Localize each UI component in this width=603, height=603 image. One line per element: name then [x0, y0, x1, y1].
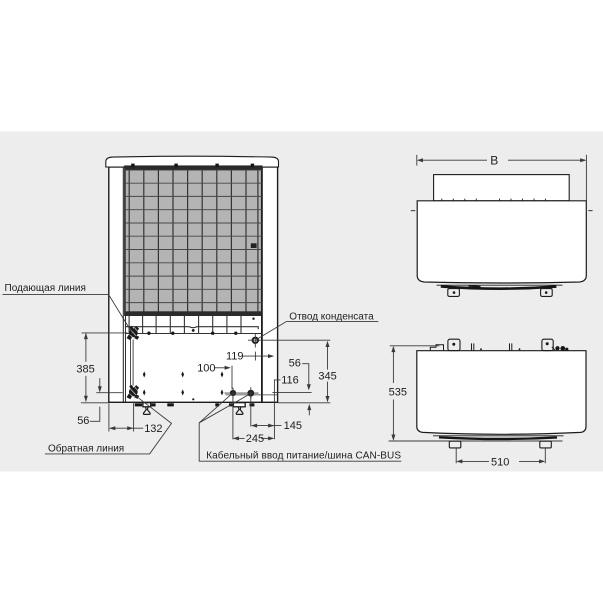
svg-text:Подающая линия: Подающая линия [5, 283, 86, 294]
svg-text:Обратная линия: Обратная линия [48, 442, 124, 454]
svg-text:510: 510 [491, 456, 509, 468]
svg-text:116: 116 [281, 374, 299, 386]
svg-text:Отвод конденсата: Отвод конденсата [289, 311, 374, 322]
svg-text:56: 56 [289, 358, 301, 370]
svg-text:B: B [490, 154, 498, 168]
svg-text:535: 535 [389, 386, 407, 398]
svg-text:56: 56 [77, 415, 89, 427]
svg-text:Кабельный ввод питание/шина CA: Кабельный ввод питание/шина CAN-BUS [206, 449, 401, 461]
svg-text:119: 119 [226, 351, 244, 363]
svg-text:345: 345 [318, 371, 336, 383]
svg-text:245: 245 [246, 433, 264, 445]
svg-text:145: 145 [284, 420, 302, 432]
svg-text:100: 100 [197, 363, 215, 375]
svg-text:385: 385 [76, 364, 94, 376]
svg-text:132: 132 [144, 423, 162, 435]
